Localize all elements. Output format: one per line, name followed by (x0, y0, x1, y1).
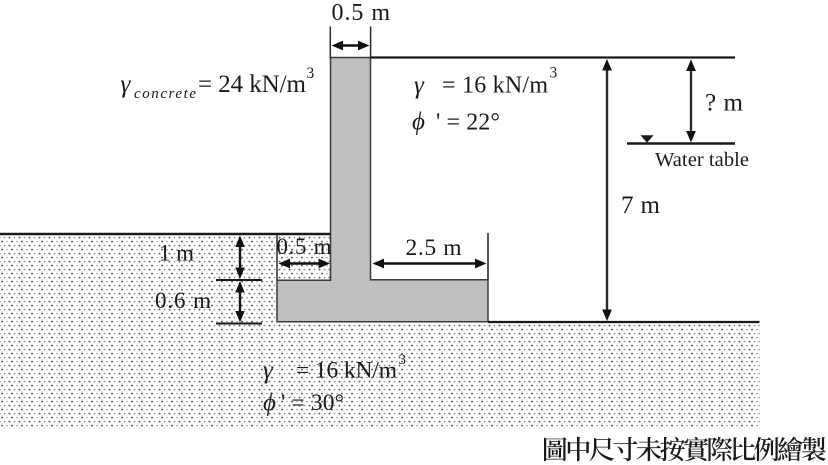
svg-text:γ: γ (121, 71, 132, 98)
svg-text:= 16 kN/m: = 16 kN/m (296, 358, 397, 384)
svg-text:3: 3 (399, 352, 407, 368)
svg-text:3: 3 (307, 65, 315, 82)
svg-text:ϕ: ϕ (263, 390, 276, 417)
svg-text:? m: ? m (705, 90, 744, 117)
svg-text:Water table: Water table (655, 149, 749, 171)
svg-text:= 16 kN/m: = 16 kN/m (442, 73, 548, 99)
svg-text:3: 3 (550, 65, 558, 82)
svg-text:0.6 m: 0.6 m (155, 288, 211, 313)
svg-text:7 m: 7 m (621, 192, 661, 219)
svg-text:γ: γ (414, 72, 425, 99)
svg-text:1 m: 1 m (159, 241, 194, 266)
svg-text:ϕ: ϕ (412, 109, 425, 136)
svg-text:' = 22°: ' = 22° (436, 110, 500, 136)
svg-text:= 24 kN/m: = 24 kN/m (198, 71, 307, 98)
svg-text:0.5 m: 0.5 m (277, 234, 332, 259)
svg-text:2.5 m: 2.5 m (406, 235, 462, 261)
svg-text:' = 30°: ' = 30° (281, 390, 344, 416)
svg-text:0.5 m: 0.5 m (332, 0, 391, 26)
svg-text:concrete: concrete (134, 86, 196, 102)
svg-text:γ: γ (263, 357, 274, 384)
